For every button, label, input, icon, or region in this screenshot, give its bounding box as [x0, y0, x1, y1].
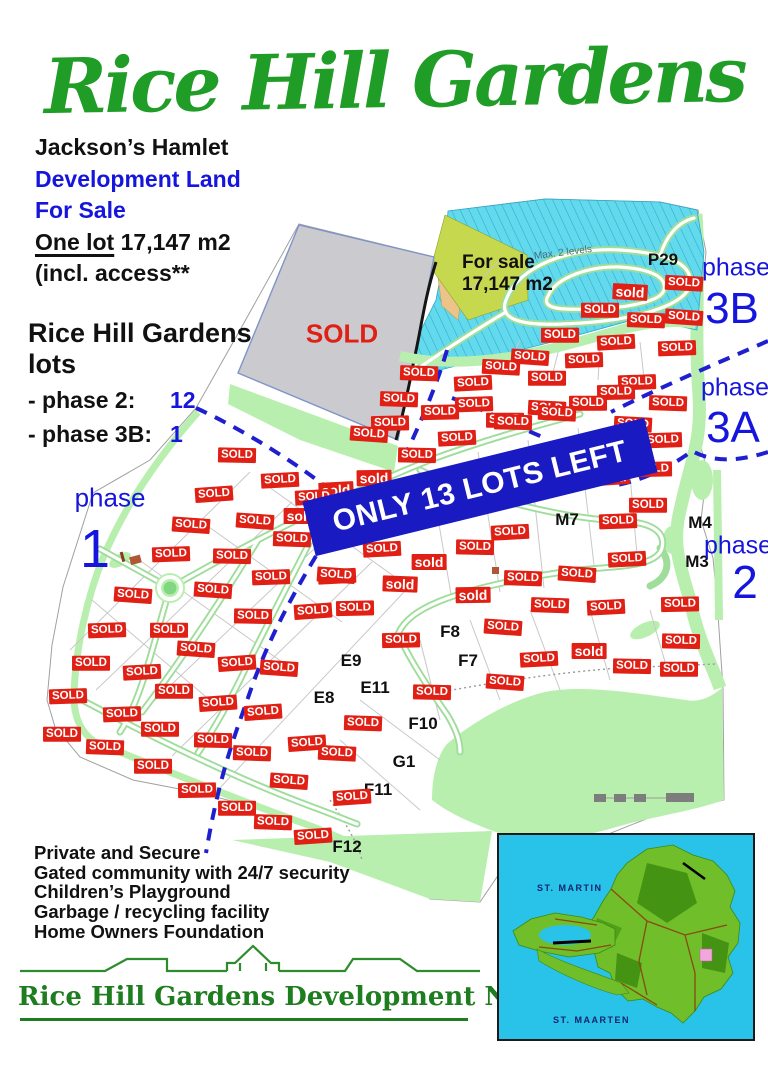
inset-label-st-martin: ST. MARTIN: [537, 883, 603, 893]
island-inset-map: ST. MARTIN ST. MAARTEN: [497, 833, 755, 1041]
dev-land-line: Development Land: [35, 164, 241, 196]
marker-icon: [368, 432, 375, 439]
flyer-page: SOLD For sale 17,147 m2 Max. 2 levels P2…: [0, 0, 768, 1086]
lots-summary: Rice Hill Gardens lots - phase 2:12 - ph…: [28, 318, 252, 448]
one-lot-size: 17,147 m2: [114, 229, 230, 255]
one-lot-underlined: One lot: [35, 229, 114, 255]
amenity-item: Garbage / recycling facility: [34, 902, 350, 922]
lots-summary-row: - phase 3B:1: [28, 421, 252, 448]
row-value: 1: [170, 421, 183, 447]
green-strip-east-2: [717, 470, 719, 620]
airport-runway: [553, 941, 591, 943]
one-lot-line: One lot 17,147 m2: [35, 227, 241, 259]
logo-skyline: [15, 933, 485, 981]
gray-lot-sold-label: SOLD: [306, 319, 378, 350]
inset-label-st-maarten: ST. MAARTEN: [553, 1015, 630, 1025]
amenity-item: Children’s Playground: [34, 882, 350, 902]
for-sale-line2: 17,147 m2: [462, 274, 553, 296]
row-label: - phase 3B:: [28, 421, 170, 448]
island-graphic: [499, 835, 753, 1039]
for-sale-line: For Sale: [35, 195, 241, 227]
lots-summary-row: - phase 2:12: [28, 387, 252, 414]
company-name: Rice Hill Gardens Development N.V.: [18, 982, 540, 1012]
location-marker: [700, 949, 712, 961]
amenity-item: Private and Secure: [34, 843, 350, 863]
page-title: Rice Hill Gardens: [43, 30, 745, 131]
amenity-item: Gated community with 24/7 security: [34, 863, 350, 883]
location-line: Jackson’s Hamlet: [35, 132, 241, 164]
access-note: (incl. access**: [35, 258, 241, 290]
row-value: 12: [170, 387, 196, 413]
roundabout-island: [164, 582, 177, 595]
intro-block: Jackson’s Hamlet Development Land For Sa…: [35, 132, 241, 290]
marker-icon: [492, 567, 499, 574]
amenities-list: Private and Secure Gated community with …: [34, 843, 350, 942]
green-patch: [691, 460, 713, 500]
lots-summary-heading2: lots: [28, 349, 252, 380]
row-label: - phase 2:: [28, 387, 170, 414]
company-underline: [20, 1018, 468, 1021]
lots-summary-heading1: Rice Hill Gardens: [28, 318, 252, 349]
